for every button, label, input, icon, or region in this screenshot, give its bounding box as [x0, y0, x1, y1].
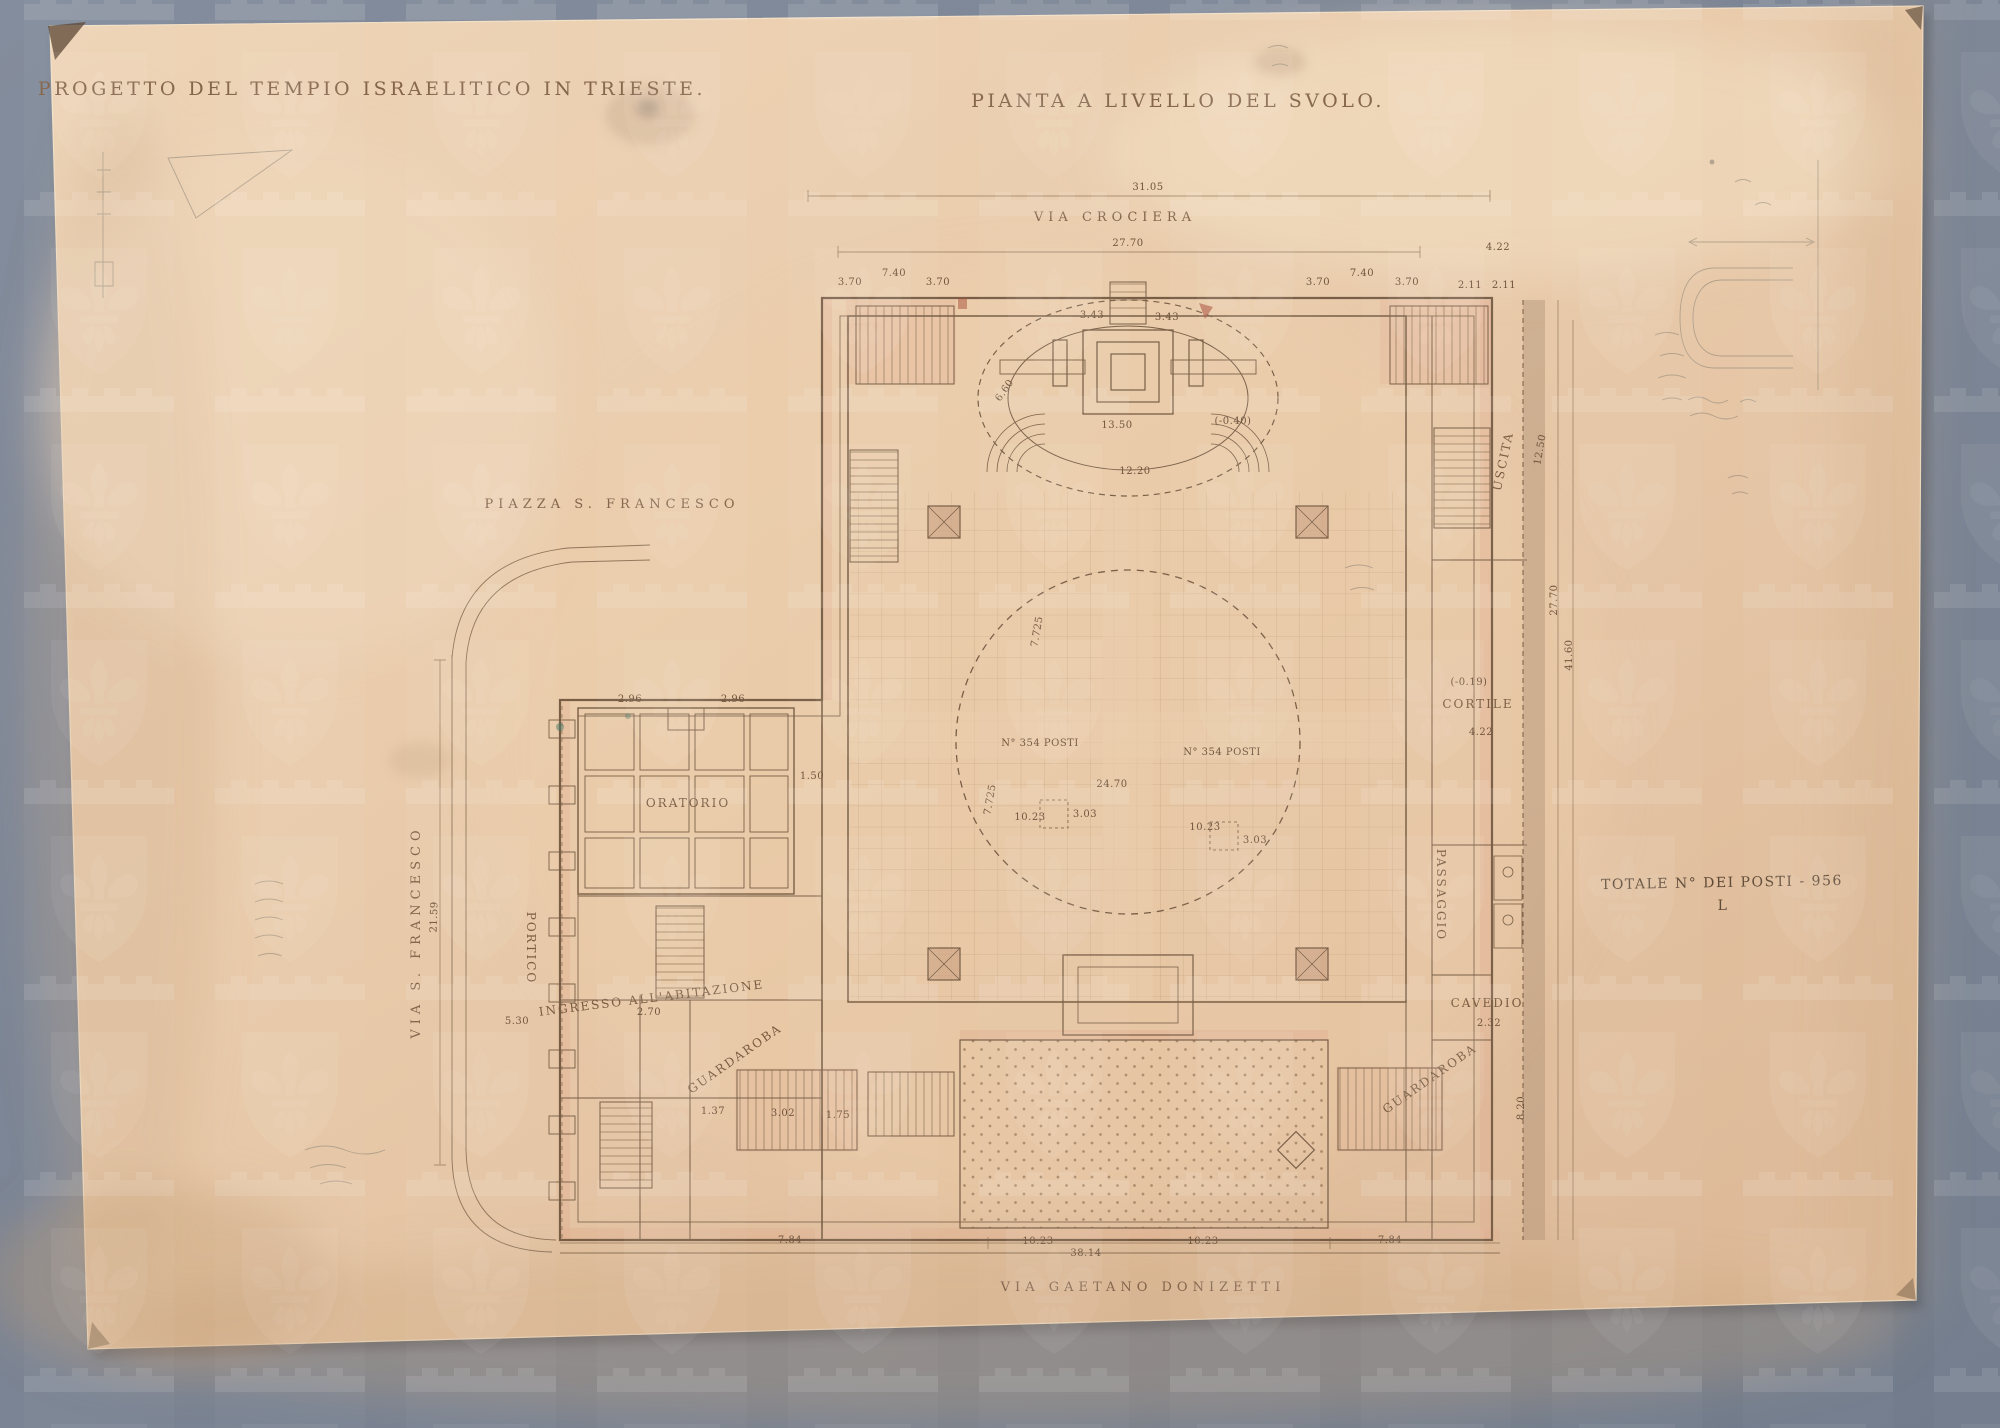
archival-scan: PROGETTO DEL TEMPIO ISRAELITICO IN TRIES… [0, 0, 2000, 1428]
archive-shield-watermark [0, 0, 2000, 1428]
drawing-sheet-scan: PROGETTO DEL TEMPIO ISRAELITICO IN TRIES… [0, 0, 2000, 1428]
